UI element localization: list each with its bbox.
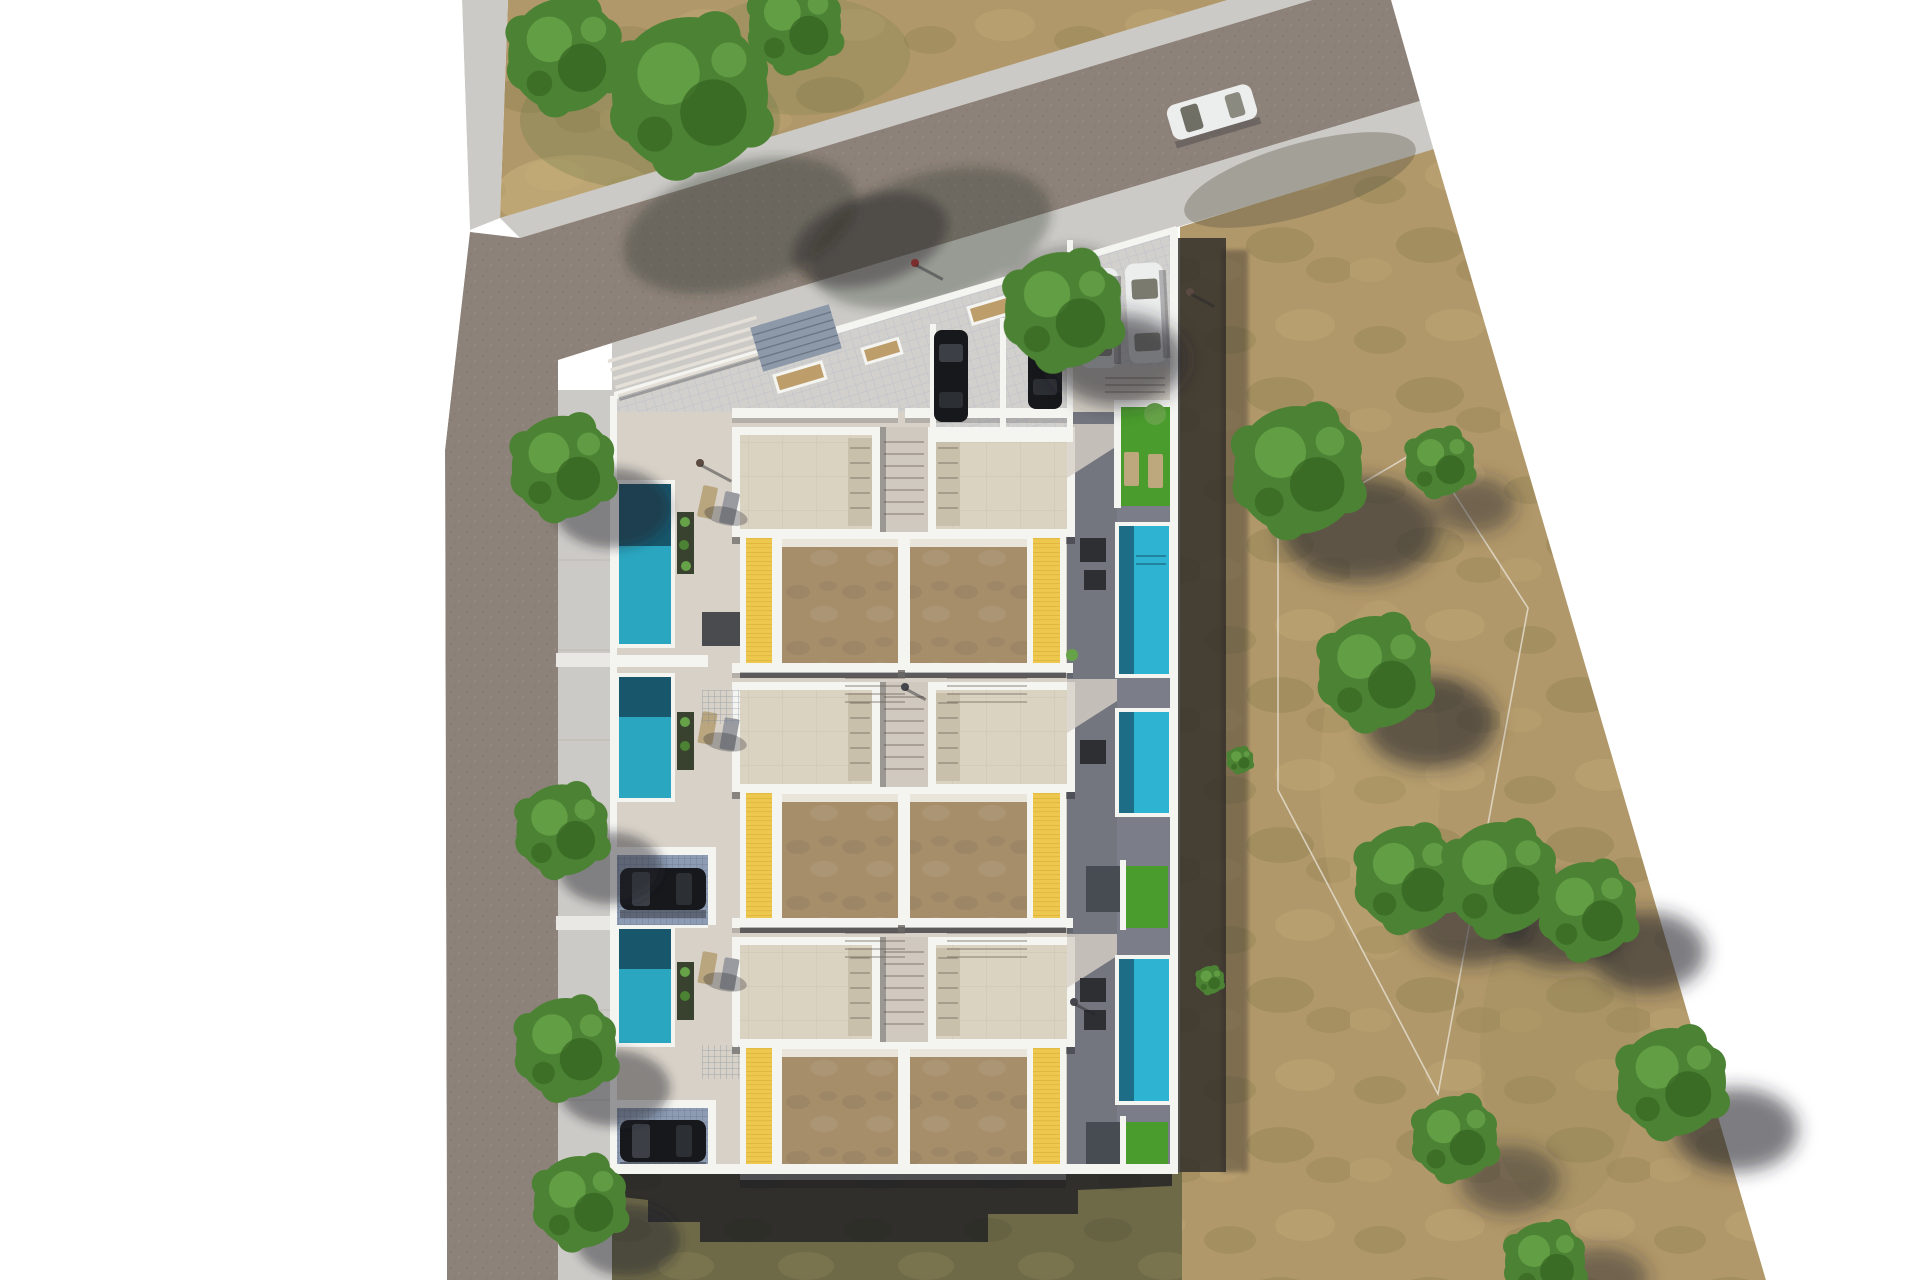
- planter-row2: [677, 712, 694, 770]
- storage-box: [1086, 1122, 1120, 1164]
- parked-car-dark: [620, 1120, 706, 1169]
- slab-gap-stairs: [880, 427, 928, 537]
- lounger: [1148, 454, 1163, 488]
- pot-plant: [1066, 649, 1078, 661]
- planter-row3: [677, 962, 694, 1020]
- lawn-patch-row3: [1126, 1122, 1168, 1168]
- entry-patio-row3: [702, 1045, 740, 1079]
- pool-right-row1: [1115, 522, 1173, 678]
- villa-row-1: [732, 408, 1075, 678]
- pouf: [1080, 978, 1106, 1002]
- pouf: [1084, 1010, 1106, 1030]
- entry-patio-row2: [702, 690, 740, 724]
- pouf: [1080, 538, 1106, 562]
- pool-right-row2: [1115, 708, 1173, 817]
- brown-roof-terrace-right: [904, 532, 1033, 670]
- lawn-patch-row2: [1126, 866, 1168, 928]
- garden-bush: [1144, 403, 1166, 425]
- lounger: [1124, 452, 1139, 486]
- villa-slab-roof-right: [928, 427, 1075, 544]
- timber-deck-right: [1027, 532, 1066, 670]
- timber-deck-left: [740, 532, 778, 670]
- plot-east-wall-shadow: [1178, 238, 1248, 1172]
- page-mask-left: [0, 0, 470, 1280]
- plot-south-wall: [610, 1164, 1178, 1174]
- site-plan-canvas: [0, 0, 1920, 1280]
- site-plan-rendering: [0, 0, 1920, 1280]
- seating-set-row1: [702, 612, 740, 646]
- villa-slab-roof-left: [732, 427, 880, 544]
- storage-box: [1086, 866, 1120, 912]
- suv-dark-forecourt: [934, 330, 968, 422]
- villa-row-2: [732, 663, 1075, 933]
- planter-row1: [677, 512, 694, 574]
- pouf: [1080, 740, 1106, 764]
- pouf: [1084, 570, 1106, 590]
- pool-right-row3: [1115, 955, 1173, 1105]
- pool-left-row2: [615, 673, 675, 802]
- brown-roof-terrace-left: [776, 532, 904, 670]
- villa-row-3: [732, 918, 1075, 1188]
- pool-left-row3: [615, 925, 675, 1047]
